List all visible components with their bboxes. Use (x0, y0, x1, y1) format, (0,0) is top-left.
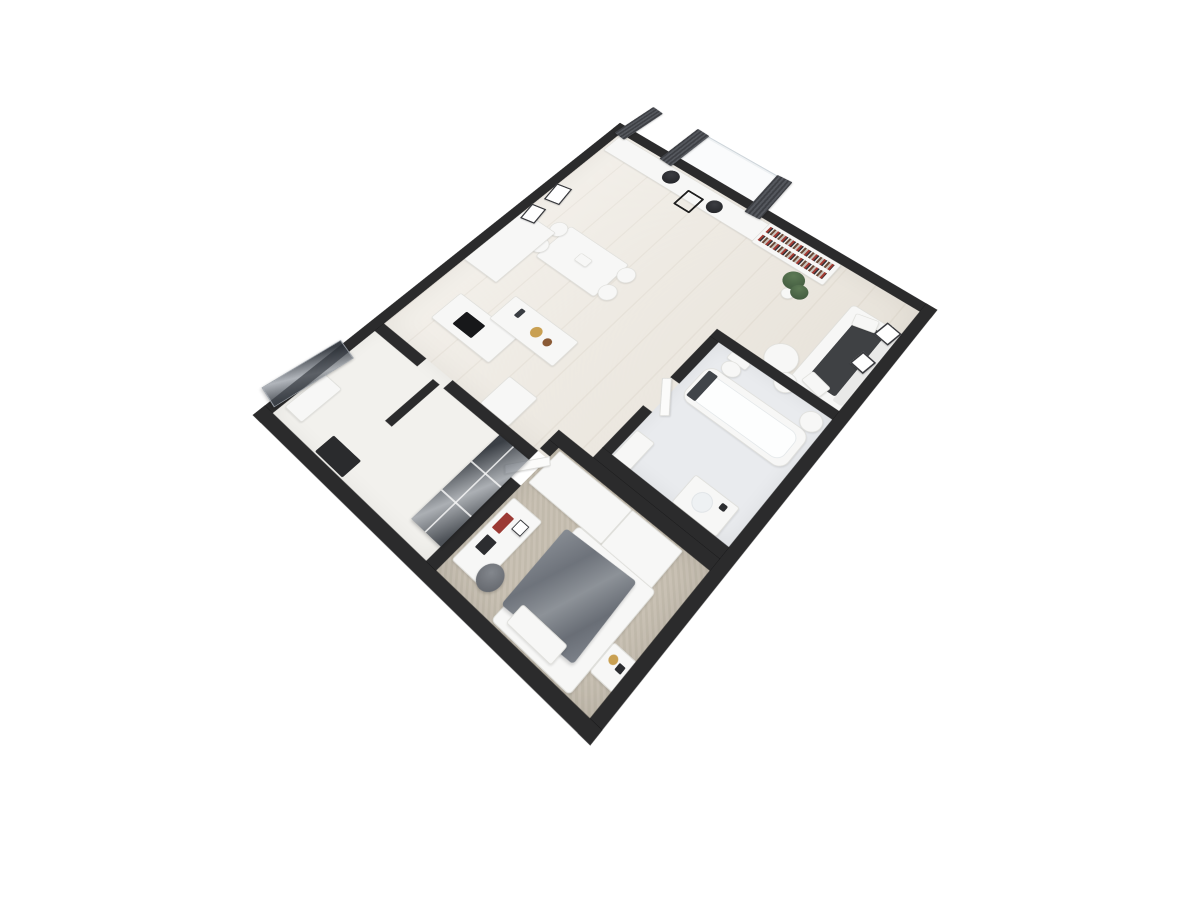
cooktop (452, 311, 485, 338)
sink (687, 488, 717, 517)
fruit-bowl (540, 337, 554, 348)
floor-plan-canvas (0, 0, 1200, 899)
apartment-plan (253, 123, 937, 745)
soap-decor (718, 503, 728, 513)
fruit-bowl (527, 325, 545, 340)
table-decor (574, 253, 593, 268)
faucet-icon (514, 308, 526, 318)
desk-object (475, 534, 497, 555)
red-books (492, 512, 514, 534)
desk-frame (511, 519, 529, 537)
dark-decor (614, 663, 625, 675)
